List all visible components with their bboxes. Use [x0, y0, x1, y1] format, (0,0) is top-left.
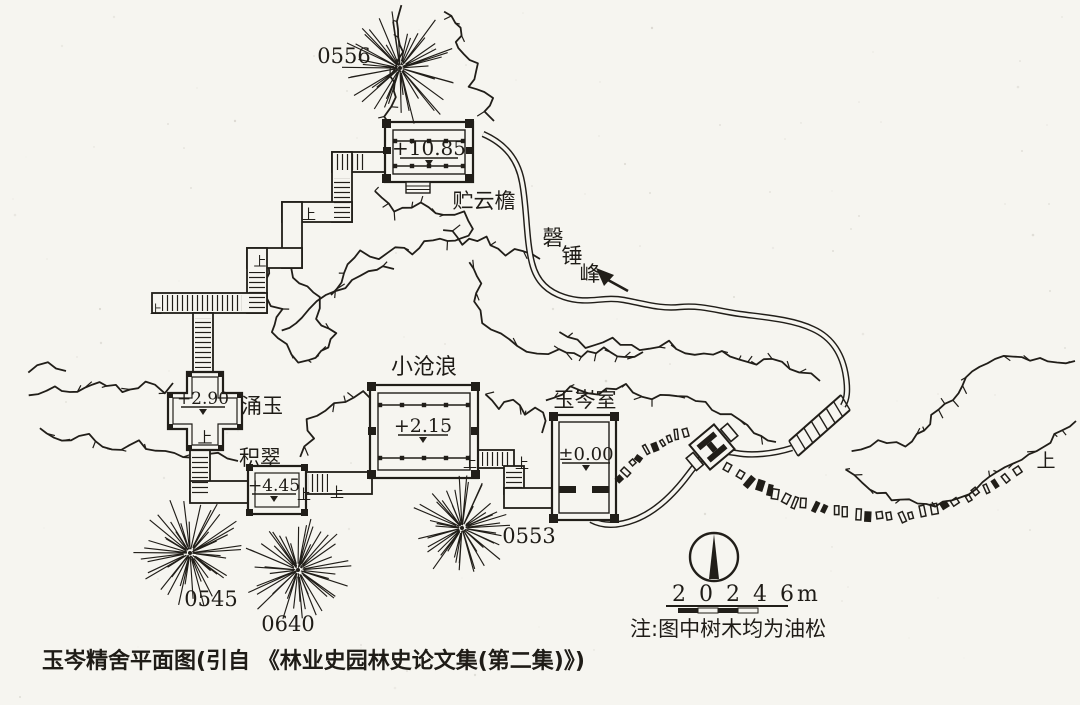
speckle — [43, 527, 44, 528]
stepping-stone — [983, 484, 990, 494]
tree-label-0545: 0545 — [184, 587, 237, 611]
speckle — [733, 296, 735, 298]
speckle — [522, 12, 524, 14]
up-marker: 上 — [197, 429, 212, 447]
speckle — [772, 247, 774, 249]
speckle — [832, 250, 834, 252]
stepping-stone — [842, 507, 847, 517]
speckle — [99, 308, 101, 310]
speckle — [444, 343, 446, 345]
column-post — [400, 456, 404, 460]
column-post — [378, 403, 382, 407]
rock-texture — [444, 16, 484, 116]
speckle — [1017, 86, 1020, 89]
column-post — [422, 456, 426, 460]
speckle — [418, 29, 419, 30]
speckle — [1048, 203, 1050, 205]
speckle — [394, 687, 397, 690]
label-zhuyunyan: 贮云檐 — [453, 189, 516, 213]
stepping-stone — [821, 505, 827, 513]
speckle — [167, 123, 169, 125]
speckle — [226, 432, 228, 434]
speckle — [348, 528, 350, 530]
figure-caption: 玉岑精舍平面图(引自 《林业史园林史论文集(第二集)》) — [42, 648, 585, 674]
speckle — [994, 394, 995, 395]
speckle — [858, 215, 860, 217]
column-post — [444, 403, 448, 407]
stepping-stone — [666, 435, 672, 442]
bridge-tread — [796, 434, 805, 449]
speckle — [515, 79, 517, 81]
label-xiaocanglang: 小沧浪 — [391, 355, 457, 380]
speckle — [395, 252, 397, 254]
bridge-tread — [826, 408, 835, 423]
site-plan-drawing: 0556054506400553 上上上上上上上上上 贮云檐 涌玉 积翠 小沧浪… — [0, 0, 1080, 705]
speckle — [179, 281, 180, 282]
rock-texture — [917, 356, 1070, 435]
speckle — [138, 647, 139, 648]
speckle — [183, 147, 185, 149]
rock-outline — [282, 266, 394, 330]
tree-symbol-0640 — [246, 519, 351, 619]
speckle — [617, 319, 618, 320]
walkway-path — [483, 134, 847, 525]
speckle — [624, 163, 626, 165]
speckle — [65, 401, 67, 403]
speckle — [552, 308, 554, 310]
speckle — [93, 146, 94, 147]
speckle — [769, 191, 771, 193]
speckle — [800, 122, 801, 123]
speckle — [474, 674, 476, 676]
speckle — [599, 81, 600, 82]
speckle — [880, 121, 882, 123]
stepping-stone — [744, 476, 755, 488]
speckle — [639, 245, 641, 247]
column-post — [444, 456, 448, 460]
speckle — [197, 88, 198, 89]
column-post — [466, 403, 470, 407]
speckle — [1019, 60, 1021, 62]
speckle — [163, 477, 165, 479]
rock-outline — [559, 332, 820, 381]
rock-outline — [444, 12, 494, 121]
peak-label-qingchuifeng: 磬 锤 峰 — [543, 226, 629, 291]
speckle — [13, 199, 14, 200]
up-marker: 上 — [150, 303, 162, 317]
stepping-stone — [791, 497, 798, 509]
stepping-stone — [971, 487, 979, 495]
stepping-stone — [886, 512, 892, 520]
stepping-stone — [865, 512, 871, 521]
speckle — [1029, 529, 1031, 531]
elevation-zhuyunyan: +10.85 — [392, 136, 466, 160]
stepping-stone — [800, 498, 806, 508]
pine-center — [188, 551, 192, 555]
speckle — [431, 48, 433, 50]
stepping-stone — [723, 463, 732, 472]
peak-char-1: 磬 — [543, 226, 564, 250]
tree-label-0556: 0556 — [317, 44, 370, 68]
stepping-stone — [771, 489, 779, 500]
speckle — [190, 187, 192, 189]
stepping-stone — [898, 512, 906, 523]
column-post — [400, 403, 404, 407]
stepping-stone — [651, 442, 658, 451]
speckle — [593, 649, 594, 650]
label-yucenshi: 玉岑室 — [554, 388, 617, 412]
speckle — [76, 356, 78, 358]
column-post — [422, 403, 426, 407]
elevation-xiaocanglang: +2.15 — [394, 415, 452, 437]
column-post — [410, 164, 414, 168]
stepping-stone — [736, 470, 745, 479]
speckle — [584, 193, 585, 194]
pine-rays — [414, 476, 510, 572]
speckle — [649, 192, 651, 194]
rock-outline — [485, 394, 545, 433]
bridge-tread — [811, 421, 820, 436]
rock-outline — [852, 356, 1075, 451]
speckle — [313, 55, 315, 57]
stepping-stone — [965, 495, 972, 502]
speckle — [909, 638, 910, 639]
pine-center — [398, 66, 402, 70]
column-post — [393, 164, 397, 168]
speckle — [539, 627, 540, 628]
stepping-stone — [835, 506, 839, 515]
speckle — [403, 336, 404, 337]
speckle — [360, 644, 362, 646]
rock-texture — [846, 430, 1067, 506]
stepping-stone — [1013, 466, 1022, 475]
speckle — [157, 578, 159, 580]
up-marker: 上 — [253, 255, 266, 270]
speckle — [465, 64, 467, 66]
pine-center — [296, 568, 300, 572]
speckle — [786, 518, 787, 519]
speckle — [234, 120, 236, 122]
speckle — [168, 370, 169, 371]
tree-symbol-0553 — [414, 476, 510, 572]
stepping-stone — [876, 511, 883, 518]
speckle — [1032, 234, 1035, 237]
peak-char-3: 峰 — [580, 262, 601, 286]
bridge-tread — [819, 415, 828, 430]
speckle — [14, 214, 17, 217]
elevation-yongyu: +2.90 — [177, 389, 229, 409]
stepping-stone — [919, 505, 926, 517]
speckle — [19, 696, 21, 698]
speckle — [61, 45, 63, 47]
speckle — [830, 570, 832, 572]
speckle — [1046, 124, 1048, 126]
elevation-yucenshi: ±0.00 — [558, 444, 613, 465]
speckle — [651, 27, 653, 29]
speckle — [461, 577, 462, 578]
column-post — [378, 456, 382, 460]
speckle — [26, 157, 27, 158]
elevation-jicui: +4.45 — [248, 476, 300, 496]
speckle — [531, 185, 533, 187]
column-post — [461, 164, 465, 168]
bridge-tread — [804, 428, 813, 443]
speckle — [1061, 16, 1063, 18]
up-marker: 上 — [463, 455, 477, 471]
speckle — [841, 600, 843, 602]
speckle — [350, 462, 352, 464]
scale-label: 2 0 2 4 6m — [672, 582, 821, 607]
stepping-stone — [1001, 474, 1010, 483]
rock-outline — [28, 362, 66, 372]
speckle — [356, 137, 357, 138]
stepping-stone — [812, 502, 820, 513]
speckle — [704, 513, 706, 515]
speckle — [847, 586, 849, 588]
stepping-stone — [856, 509, 861, 520]
label-jicui: 积翠 — [239, 446, 281, 470]
speckle — [719, 124, 721, 126]
speckle — [237, 430, 238, 431]
up-marker: 上 — [1036, 450, 1055, 472]
speckle — [897, 401, 898, 402]
speckle — [100, 342, 102, 344]
stepping-stone — [642, 445, 649, 455]
speckle — [825, 474, 826, 475]
note-text: 注:图中树木均为油松 — [630, 617, 826, 641]
stepping-stone — [682, 428, 689, 437]
speckle — [1004, 203, 1006, 205]
scale-bar: 2 0 2 4 6m — [666, 582, 821, 613]
paper-noise — [13, 12, 1067, 698]
label-yongyu: 涌玉 — [241, 394, 283, 418]
speckle — [831, 546, 832, 547]
speckle — [850, 228, 852, 230]
speckle — [113, 16, 115, 18]
stepping-stone — [635, 455, 642, 462]
tree-label-0553: 0553 — [502, 524, 555, 548]
tree-label-0640: 0640 — [261, 612, 314, 636]
speckle — [997, 509, 998, 510]
speckle — [937, 393, 938, 394]
speckle — [937, 597, 938, 598]
speckle — [1064, 347, 1066, 349]
speckle — [858, 101, 860, 103]
speckle — [862, 333, 865, 336]
pine-center — [460, 526, 464, 530]
speckle — [605, 380, 608, 383]
stepping-stone — [756, 480, 765, 491]
column-post — [444, 164, 448, 168]
stepping-stone — [621, 467, 631, 477]
stepping-stone — [674, 429, 678, 440]
north-arrow-icon — [690, 533, 738, 581]
speckle — [669, 363, 671, 365]
stepping-stone — [991, 479, 998, 488]
stepping-stone — [629, 459, 636, 466]
speckle — [872, 51, 873, 52]
up-marker: 上 — [302, 207, 316, 223]
up-marker: 上 — [515, 456, 529, 472]
stepping-stone — [908, 512, 914, 519]
rock-outline — [300, 391, 371, 457]
speckle — [784, 138, 786, 140]
speckle — [831, 190, 832, 191]
scanned-plan-page: 0556054506400553 上上上上上上上上上 贮云檐 涌玉 积翠 小沧浪… — [0, 0, 1080, 705]
peak-direction-arrow-icon — [596, 268, 628, 291]
speckle — [964, 658, 965, 659]
speckle — [1021, 150, 1023, 152]
speckle — [1049, 290, 1051, 292]
rock-texture — [337, 187, 448, 289]
speckle — [598, 135, 599, 136]
speckle — [46, 258, 47, 259]
rock-texture — [485, 392, 526, 415]
stepping-stones — [616, 428, 1023, 523]
up-marker: 上 — [330, 485, 344, 501]
stepping-stone — [660, 439, 666, 446]
stepping-stone — [781, 493, 791, 504]
speckle — [346, 90, 348, 92]
